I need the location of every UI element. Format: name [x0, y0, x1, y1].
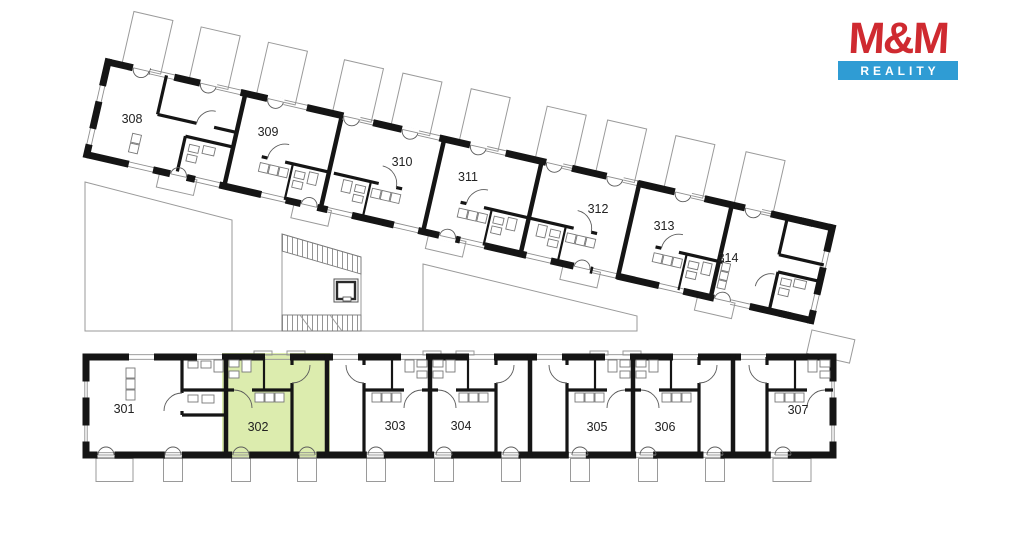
apartment-label-314: 314 [718, 251, 739, 265]
apartment-label-302: 302 [248, 420, 269, 434]
apartment-label-308: 308 [122, 112, 143, 126]
top-building [77, 8, 890, 363]
apartment-label-304: 304 [451, 419, 472, 433]
highlight-apartment-302 [222, 353, 330, 458]
apartment-label-313: 313 [654, 219, 675, 233]
courtyard-outline-left [85, 182, 232, 331]
stair-flight-upper [282, 234, 361, 274]
courtyard-outline-right [423, 264, 637, 331]
apartment-label-311: 311 [458, 170, 478, 184]
apartment-label-309: 309 [258, 125, 279, 139]
stair-flight-lower [282, 315, 361, 331]
apartment-label-301: 301 [114, 402, 135, 416]
bottom-building [85, 351, 834, 482]
apartment-label-305: 305 [587, 420, 608, 434]
apartment-label-306: 306 [655, 420, 676, 434]
mm-reality-logo: M&M REALITY [838, 18, 958, 80]
bottom-building-body [86, 357, 833, 455]
apartment-label-303: 303 [385, 419, 406, 433]
elevator [334, 279, 358, 302]
floor-plan-svg: 308 309 310 311 312 313 314 301 302 303 … [0, 0, 1024, 558]
apartment-label-307: 307 [788, 403, 809, 417]
floor-plan-page: 308 309 310 311 312 313 314 301 302 303 … [0, 0, 1024, 558]
staircase-core [282, 234, 361, 331]
apartment-label-310: 310 [392, 155, 413, 169]
logo-reality-bar: REALITY [838, 61, 958, 80]
apartment-label-312: 312 [588, 202, 609, 216]
entrance-porches [96, 459, 811, 482]
logo-wordmark: M&M [837, 18, 959, 60]
